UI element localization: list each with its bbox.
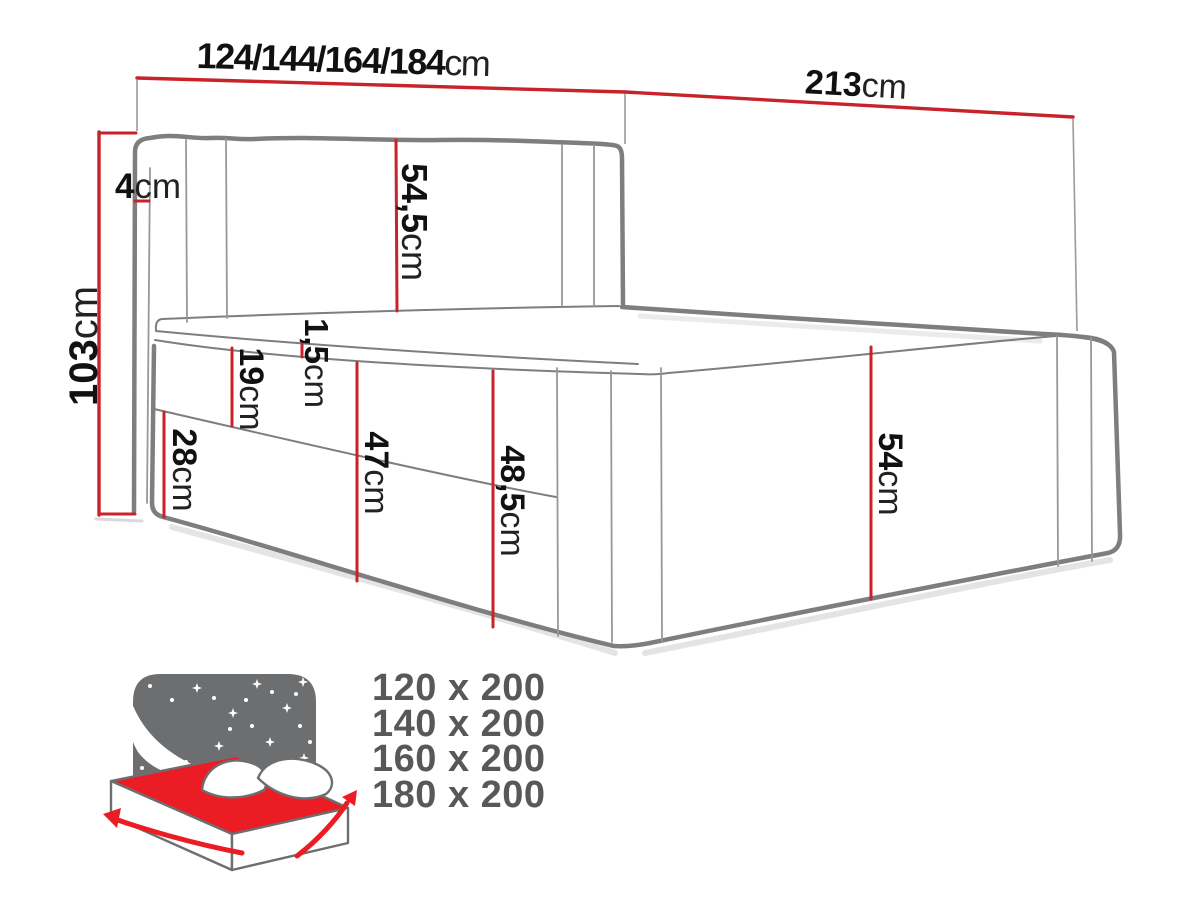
headboard-height-unit: cm	[396, 233, 432, 281]
size-option-4: 180 x 200	[372, 778, 632, 814]
base-outline	[152, 307, 1120, 646]
available-sizes-list: 120 x 200 140 x 200 160 x 200 180 x 200	[372, 671, 632, 813]
height-value: 103	[64, 339, 104, 406]
side-front-value: 47	[359, 431, 393, 469]
frame-value: 19	[234, 347, 268, 385]
height-dimension-label: 103cm	[63, 264, 105, 428]
witness-lines	[137, 80, 1077, 331]
drawer-dimension-label: 28cm	[166, 417, 202, 523]
side-total-dimension-label: 48,5cm	[494, 431, 530, 571]
side-total-value: 48,5	[495, 445, 529, 511]
lip-value: 1,5	[301, 318, 334, 364]
height-unit: cm	[64, 286, 104, 339]
headboard-wing-dimension-label: 4cm	[88, 168, 208, 204]
foot-side-dimension-label: 54cm	[872, 421, 908, 527]
headboard-height-dimension-label: 54,5cm	[395, 142, 433, 302]
width-unit: cm	[444, 45, 490, 82]
bed-outline	[134, 136, 1120, 646]
drawer-value: 28	[167, 428, 201, 466]
bed-sizes-icon	[103, 674, 357, 870]
foot-side-unit: cm	[873, 470, 907, 515]
side-total-unit: cm	[495, 511, 529, 556]
headboard-height-value: 54,5	[396, 163, 432, 233]
mattress-left-cap	[156, 319, 162, 330]
side-front-dimension-label: 47cm	[358, 420, 394, 526]
upper-frame-dimension-label: 19cm	[233, 336, 269, 442]
headboard-inner-line	[147, 168, 150, 503]
mattress-back-edge	[162, 306, 619, 319]
length-value: 213	[804, 65, 863, 102]
size-option-1: 120 x 200	[372, 671, 632, 707]
lip-unit: cm	[301, 364, 334, 408]
drawer-unit: cm	[167, 466, 201, 511]
wing-unit: cm	[134, 169, 181, 204]
mattress-lip-dimension-label: 1,5cm	[299, 306, 335, 420]
frame-unit: cm	[234, 385, 268, 430]
size-option-3: 160 x 200	[372, 742, 632, 778]
wing-value: 4	[115, 169, 134, 204]
foot-side-value: 54	[873, 432, 907, 470]
size-option-2: 140 x 200	[372, 707, 632, 743]
mattress-front-edge	[156, 331, 638, 364]
bed-dimension-diagram: 124/144/164/184cm 213cm 103cm 4cm 54,5cm…	[0, 0, 1200, 900]
width-value: 124/144/164/184	[196, 38, 445, 81]
length-unit: cm	[861, 68, 908, 104]
side-front-unit: cm	[359, 469, 393, 514]
